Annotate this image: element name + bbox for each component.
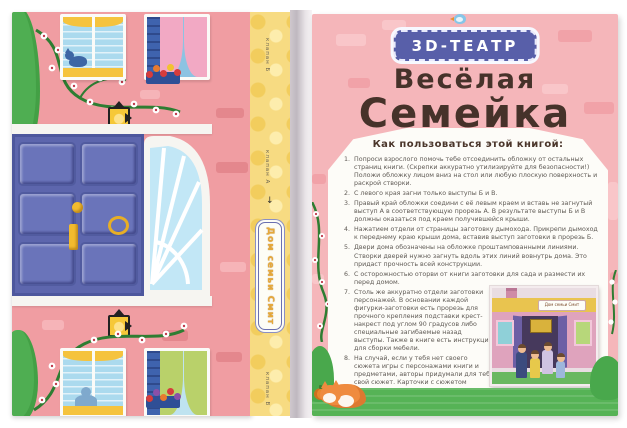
flap-label-middle: клапан А: [264, 150, 270, 184]
howto-item-6: С осторожностью оторви от книги заготовк…: [352, 271, 600, 287]
fanlight-arch: [144, 134, 210, 296]
flower: [167, 64, 174, 71]
howto-item-3: Правый край обложки соедини с её левым к…: [352, 200, 600, 224]
photo-figure-girl: [530, 351, 540, 378]
brick: [608, 182, 618, 220]
howto-item-2: С левого края загни только выступы Б и В…: [352, 190, 600, 198]
flower: [153, 65, 160, 72]
brick: [216, 162, 248, 173]
door-lintel: [12, 124, 212, 134]
brick: [312, 174, 326, 184]
brick: [216, 352, 242, 362]
door-knocker: [108, 216, 129, 235]
window-cat: [60, 14, 126, 80]
flower: [160, 70, 167, 77]
window-shutter-top: [144, 14, 210, 80]
letter-slot: [69, 224, 78, 250]
house-name-sign: Дом семьи Смит: [258, 222, 282, 330]
bird-icon: [452, 14, 468, 25]
howto-item-1: Попроси взрослого помочь тебе отсоединит…: [352, 156, 600, 188]
howto-item-7: Столь же аккуратно отдели заготовки перс…: [352, 289, 494, 353]
cat-silhouette: [69, 56, 87, 67]
window-glass: [63, 17, 123, 77]
house-name-sign-text: Дом семьи Смит: [265, 227, 275, 325]
howto-item-4: Нажатием отдели от страницы заготовку ды…: [352, 226, 600, 242]
instructions-page: 3D-ТЕАТР Весёлая Семейка Как пользоватьс…: [312, 14, 618, 416]
photo-window-right: [574, 320, 592, 346]
howto-item-5: Двери дома обозначены на обложке проштам…: [352, 244, 600, 268]
curtain-right: [184, 17, 207, 77]
flower: [160, 394, 167, 401]
photo-window-left: [496, 320, 514, 346]
photo-figure-boy: [556, 354, 565, 378]
photo-interior-picture: [530, 319, 552, 333]
flower: [153, 389, 160, 396]
photo-house-sign: Дом семьи Смит: [538, 300, 586, 311]
book-pages-edge: [290, 10, 312, 418]
flower: [146, 71, 153, 78]
spine-flap-strip: [250, 12, 290, 416]
flap-label-bottom: клапан В: [264, 372, 270, 406]
arrow-down-icon: ↓: [266, 196, 274, 206]
book-spread-photo: клапан Б клапан А ↓ Дом семьи Смит клапа…: [0, 0, 627, 428]
front-door: [12, 134, 144, 296]
cat-illustration: [320, 374, 366, 408]
window-glass: [63, 351, 123, 415]
howto-heading: Как пользоваться этой книгой:: [336, 139, 600, 150]
bush: [590, 356, 618, 400]
series-badge: 3D-ТЕАТР: [394, 30, 537, 61]
window-shutter-bottom: [144, 348, 210, 416]
window-person: [60, 348, 126, 416]
cover-page: [12, 12, 252, 416]
door-knob: [72, 202, 83, 213]
brick: [216, 108, 244, 118]
flower: [174, 69, 181, 76]
brick: [220, 262, 246, 272]
photo-figure-father: [516, 345, 527, 378]
brick: [336, 34, 366, 46]
flap-label-top: клапан Б: [264, 38, 270, 72]
curtain-right: [184, 351, 207, 415]
brick: [558, 30, 592, 42]
flower: [146, 395, 153, 402]
flower: [167, 388, 174, 395]
curtain-sill: [63, 406, 123, 415]
flower: [174, 393, 181, 400]
instructions-panel: Как пользоваться этой книгой: Попроси вз…: [328, 128, 608, 410]
series-badge-label: 3D-ТЕАТР: [412, 37, 519, 55]
curtain-sill: [63, 68, 123, 77]
assembled-house-photo: Дом семьи Смит: [490, 286, 598, 386]
brick: [382, 20, 406, 30]
book-title-line1: Весёлая: [312, 66, 618, 93]
photo-figure-mother: [542, 343, 553, 374]
